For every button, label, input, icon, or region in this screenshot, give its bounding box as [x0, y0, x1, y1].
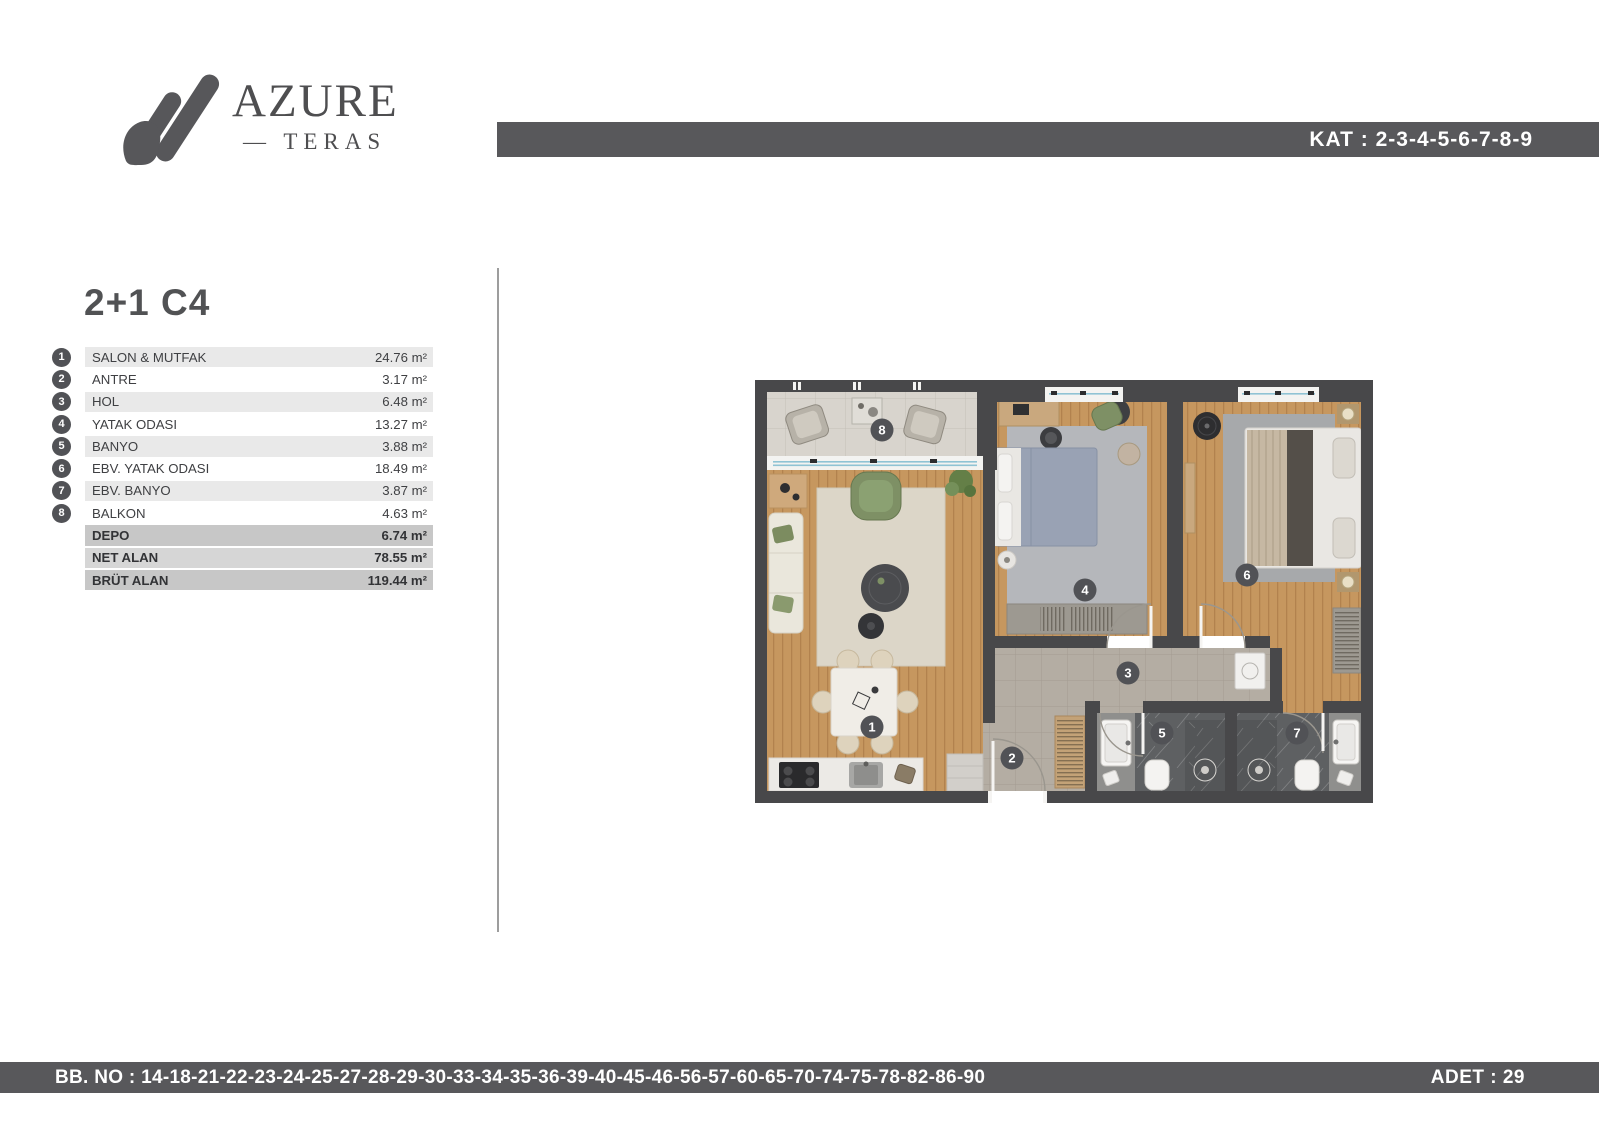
wardrobe4: [1007, 604, 1147, 634]
bedroom4-furniture: [995, 398, 1147, 634]
azure-teras-logo-icon: [106, 64, 230, 174]
bedroom4-window: [1045, 387, 1123, 402]
floor-label: KAT : 2-3-4-5-6-7-8-9: [1309, 128, 1533, 151]
wall-shelf: [1185, 463, 1195, 533]
table-row: 2ANTRE3.17 m²: [52, 369, 433, 389]
antre-furniture: [1055, 716, 1085, 788]
summary-label: BRÜT ALAN: [92, 573, 168, 588]
bed4: [995, 448, 1097, 546]
washer: [1235, 653, 1265, 689]
table-row: 5BANYO3.88 m²: [52, 436, 433, 456]
room-number-badge: 1: [52, 348, 71, 367]
room-area: 3.88 m²: [382, 439, 427, 454]
summary-row: NET ALAN78.55 m²: [52, 548, 433, 568]
toilet: [1295, 760, 1319, 790]
counter-end: [947, 754, 983, 791]
table-row: 3HOL6.48 m²: [52, 392, 433, 412]
balcony-window-band: [767, 456, 983, 470]
shower-area: [1185, 720, 1225, 791]
badge-spacer: [52, 548, 71, 567]
plan-badge-number: 1: [868, 720, 875, 735]
summary-area: 78.55 m²: [374, 550, 427, 565]
summary-label: DEPO: [92, 528, 129, 543]
plan-badge-number: 4: [1081, 583, 1089, 598]
toilet: [1145, 760, 1169, 790]
plan-badge-number: 5: [1158, 726, 1165, 741]
coffee-table: [861, 564, 909, 612]
table-row: 7EBV. BANYO3.87 m²: [52, 481, 433, 501]
room-number-badge: 7: [52, 481, 71, 500]
summary-row: DEPO6.74 m²: [52, 525, 433, 545]
plan-badge-number: 6: [1243, 568, 1250, 583]
unit-numbers-bar: BB. NO : 14-18-21-22-23-24-25-27-28-29-3…: [0, 1062, 1599, 1093]
vertical-divider: [497, 268, 499, 932]
wardrobe6: [1333, 608, 1361, 673]
room-area: 13.27 m²: [375, 417, 427, 432]
room-number-badge: 8: [52, 504, 71, 523]
plan-badge-number: 8: [878, 423, 885, 438]
summary-area: 119.44 m²: [368, 573, 427, 588]
room-area: 6.48 m²: [382, 394, 427, 409]
round-table: [1118, 443, 1140, 465]
badge-spacer: [52, 571, 71, 590]
plan-badge-number: 3: [1124, 666, 1131, 681]
room-label: EBV. BANYO: [92, 483, 171, 498]
room-number-badge: 2: [52, 370, 71, 389]
bed6: [1245, 428, 1361, 568]
room-label: ANTRE: [92, 372, 137, 387]
summary-row: BRÜT ALAN119.44 m²: [52, 570, 433, 590]
table-row: 6EBV. YATAK ODASI18.49 m²: [52, 458, 433, 478]
table-row: 1SALON & MUTFAK24.76 m²: [52, 347, 433, 367]
plan-badge-number: 7: [1293, 726, 1300, 741]
plan-badge-number: 2: [1008, 751, 1015, 766]
table-row: 8BALKON4.63 m²: [52, 503, 433, 523]
unit-title: 2+1 C4: [84, 282, 210, 324]
room-number-badge: 6: [52, 459, 71, 478]
room-label: SALON & MUTFAK: [92, 350, 206, 365]
room-area: 24.76 m²: [375, 350, 427, 365]
pillow: [772, 594, 794, 613]
room-label: BANYO: [92, 439, 138, 454]
badge-spacer: [52, 526, 71, 545]
logo-subtitle: — TERAS: [243, 129, 386, 155]
bedroom6-window: [1238, 387, 1319, 402]
room-number-badge: 3: [52, 392, 71, 411]
room-area: 3.17 m²: [382, 372, 427, 387]
room-label: YATAK ODASI: [92, 417, 177, 432]
floor-plan: 12345678: [755, 368, 1373, 803]
kitchen-counter: [769, 754, 983, 791]
floor-bar: KAT : 2-3-4-5-6-7-8-9: [497, 122, 1599, 157]
room-area-table: 1SALON & MUTFAK24.76 m²2ANTRE3.17 m²3HOL…: [52, 347, 433, 592]
room-label: HOL: [92, 394, 119, 409]
room-area: 18.49 m²: [375, 461, 427, 476]
bb-no-label: BB. NO : 14-18-21-22-23-24-25-27-28-29-3…: [0, 1067, 985, 1089]
room-label: EBV. YATAK ODASI: [92, 461, 209, 476]
summary-area: 6.74 m²: [382, 528, 427, 543]
table-row: 4YATAK ODASI13.27 m²: [52, 414, 433, 434]
room-number-badge: 4: [52, 415, 71, 434]
logo-title: AZURE: [232, 74, 399, 128]
room-area: 4.63 m²: [382, 506, 427, 521]
room-number-badge: 5: [52, 437, 71, 456]
room-label: BALKON: [92, 506, 146, 521]
adet-label: ADET : 29: [1431, 1067, 1599, 1089]
summary-label: NET ALAN: [92, 550, 158, 565]
room-area: 3.87 m²: [382, 483, 427, 498]
